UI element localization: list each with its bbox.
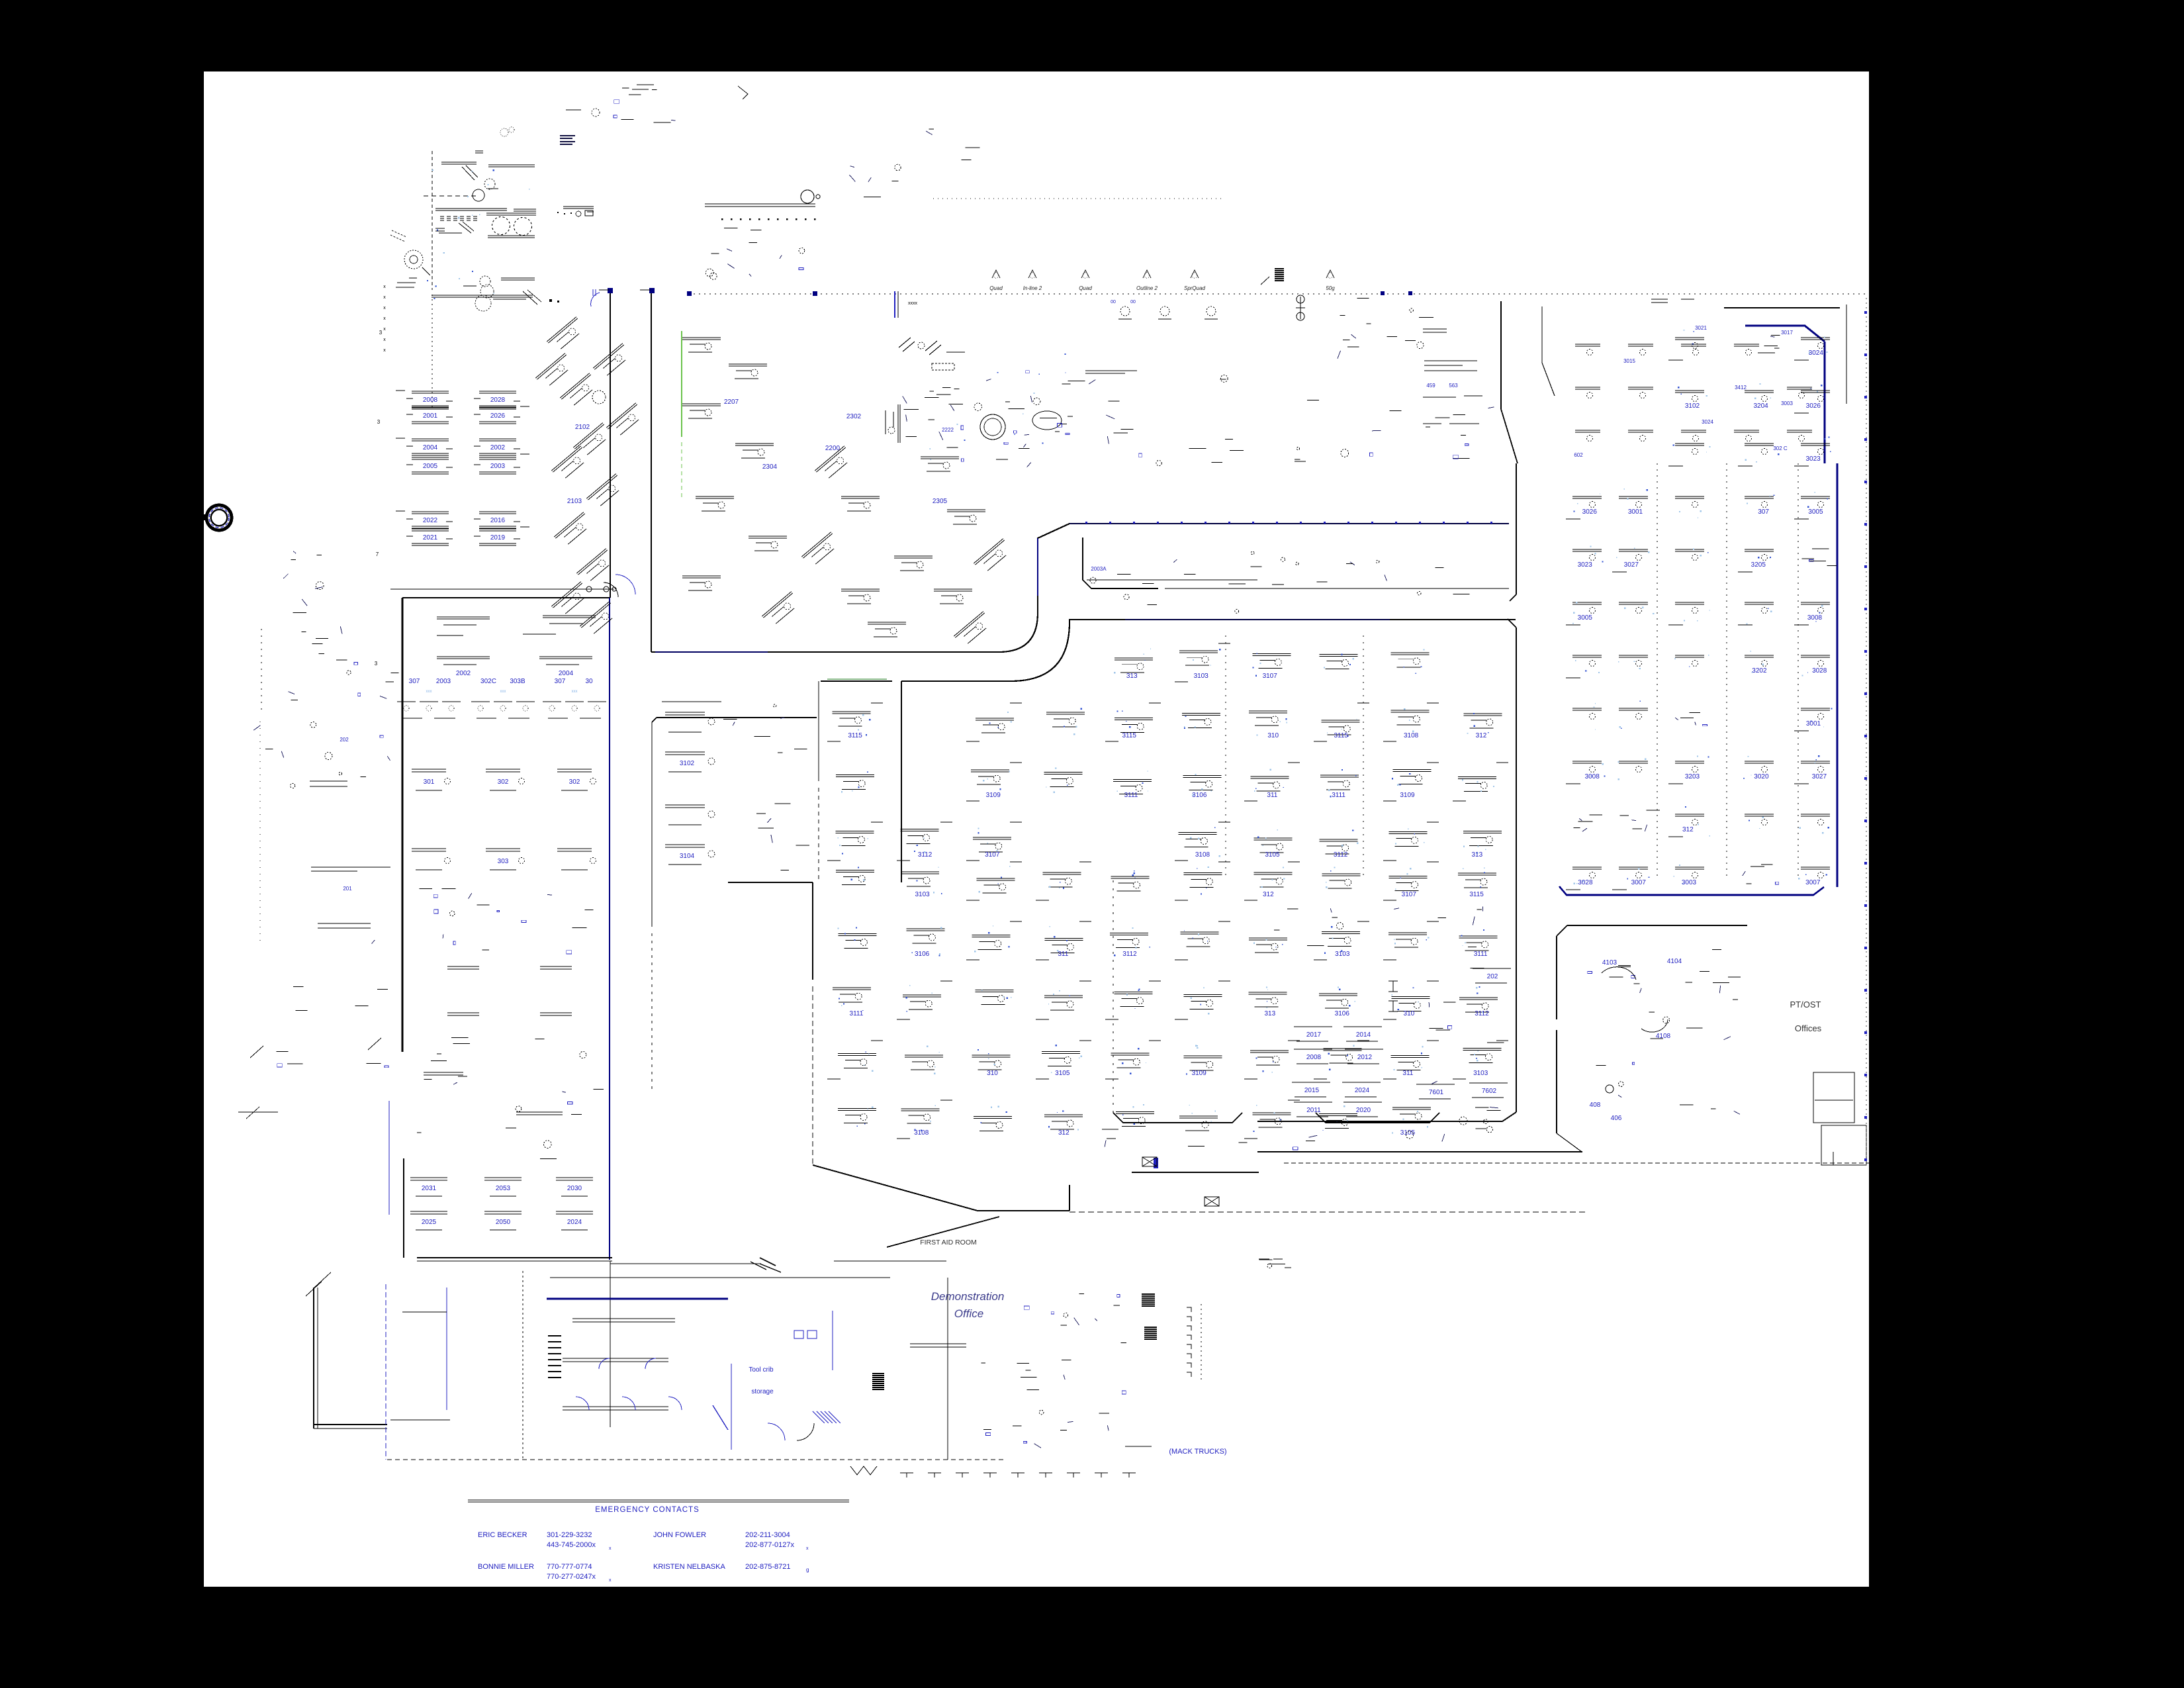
svg-text:7602: 7602 bbox=[1482, 1088, 1497, 1095]
svg-text:3028: 3028 bbox=[1812, 667, 1827, 675]
svg-text:3112: 3112 bbox=[1475, 1010, 1489, 1017]
svg-text:3023: 3023 bbox=[1805, 455, 1821, 463]
svg-text:x: x bbox=[383, 316, 386, 321]
svg-text:3: 3 bbox=[375, 661, 378, 667]
svg-text:301-229-3232: 301-229-3232 bbox=[547, 1531, 592, 1539]
svg-text:2305: 2305 bbox=[933, 498, 948, 505]
svg-text:310: 310 bbox=[987, 1070, 998, 1077]
svg-text:3005: 3005 bbox=[1808, 508, 1823, 516]
svg-text:2020: 2020 bbox=[1356, 1107, 1371, 1114]
svg-text:202-211-3004: 202-211-3004 bbox=[745, 1531, 790, 1539]
svg-text:3105: 3105 bbox=[1055, 1070, 1070, 1077]
svg-text:3001: 3001 bbox=[1806, 720, 1821, 727]
svg-text:2102: 2102 bbox=[575, 424, 590, 431]
svg-text:3108: 3108 bbox=[1195, 851, 1210, 859]
svg-text:3027: 3027 bbox=[1624, 561, 1639, 569]
svg-text:2026: 2026 bbox=[490, 412, 506, 420]
svg-text:x: x bbox=[383, 295, 386, 300]
svg-text:3003: 3003 bbox=[1682, 879, 1697, 886]
svg-text:3023: 3023 bbox=[1578, 561, 1593, 569]
svg-text:x: x bbox=[609, 1546, 612, 1551]
svg-text:313: 313 bbox=[1126, 673, 1138, 680]
svg-text:770-777-0774: 770-777-0774 bbox=[547, 1563, 592, 1571]
svg-text:3: 3 bbox=[379, 330, 383, 336]
svg-text:3112: 3112 bbox=[918, 851, 933, 859]
svg-text:x: x bbox=[609, 1578, 612, 1583]
svg-text:3020: 3020 bbox=[1754, 773, 1769, 780]
svg-text:storage: storage bbox=[751, 1388, 774, 1395]
svg-text:2103: 2103 bbox=[567, 498, 582, 505]
svg-text:3: 3 bbox=[377, 419, 381, 425]
svg-text:SprQuad: SprQuad bbox=[1184, 285, 1206, 291]
svg-text:3007: 3007 bbox=[1631, 879, 1647, 886]
svg-text:3111: 3111 bbox=[850, 1010, 864, 1017]
svg-text:2015: 2015 bbox=[1304, 1087, 1320, 1094]
svg-text:2002: 2002 bbox=[456, 670, 471, 677]
svg-text:Office: Office bbox=[954, 1307, 983, 1320]
svg-text:JOHN FOWLER: JOHN FOWLER bbox=[653, 1531, 706, 1539]
svg-text:3111: 3111 bbox=[1474, 951, 1488, 958]
svg-text:2014: 2014 bbox=[1356, 1031, 1371, 1039]
svg-text:311: 311 bbox=[1402, 1070, 1413, 1077]
svg-text:3109: 3109 bbox=[1192, 1070, 1207, 1077]
svg-text:3103: 3103 bbox=[1194, 673, 1209, 680]
svg-text:2304: 2304 bbox=[762, 463, 778, 471]
svg-text:3106: 3106 bbox=[915, 951, 930, 958]
svg-text:3107: 3107 bbox=[985, 851, 1000, 859]
svg-text:3115: 3115 bbox=[1122, 732, 1136, 739]
svg-text:3115: 3115 bbox=[1469, 891, 1484, 898]
svg-text:3024: 3024 bbox=[1702, 419, 1713, 425]
svg-text:201: 201 bbox=[343, 886, 352, 892]
svg-text:2003A: 2003A bbox=[1091, 566, 1107, 572]
svg-text:310: 310 bbox=[1267, 732, 1279, 739]
svg-text:3107: 3107 bbox=[1402, 891, 1417, 898]
svg-text:3102: 3102 bbox=[680, 760, 695, 767]
svg-text:BONNIE MILLER: BONNIE MILLER bbox=[478, 1563, 534, 1571]
svg-text:xxxx: xxxx bbox=[908, 301, 918, 306]
svg-text:2021: 2021 bbox=[423, 534, 438, 541]
svg-text:xxx: xxx bbox=[500, 690, 506, 694]
svg-text:302: 302 bbox=[569, 778, 580, 786]
svg-text:311: 311 bbox=[1267, 792, 1277, 799]
svg-text:2207: 2207 bbox=[724, 399, 739, 406]
svg-text:2222: 2222 bbox=[942, 427, 954, 433]
svg-text:3102: 3102 bbox=[1685, 402, 1700, 410]
svg-text:3108: 3108 bbox=[1404, 732, 1419, 739]
svg-text:3106: 3106 bbox=[1335, 1010, 1350, 1017]
svg-text:Demonstration: Demonstration bbox=[931, 1290, 1005, 1303]
svg-text:2302: 2302 bbox=[846, 413, 862, 420]
svg-text:2002: 2002 bbox=[490, 444, 506, 451]
svg-text:3103: 3103 bbox=[1335, 951, 1350, 958]
svg-text:2030: 2030 bbox=[567, 1185, 582, 1192]
svg-text:xxx: xxx bbox=[572, 690, 578, 694]
svg-text:3021: 3021 bbox=[1695, 325, 1707, 331]
svg-text:302C: 302C bbox=[480, 678, 496, 685]
svg-text:4104: 4104 bbox=[1667, 958, 1682, 965]
svg-text:3105: 3105 bbox=[1265, 851, 1280, 859]
svg-text:00: 00 bbox=[1111, 300, 1116, 305]
svg-text:4103: 4103 bbox=[1602, 959, 1617, 966]
svg-text:3203: 3203 bbox=[1685, 773, 1700, 780]
svg-text:3109: 3109 bbox=[1400, 792, 1415, 799]
svg-text:3001: 3001 bbox=[1628, 508, 1643, 516]
svg-text:PT/OST: PT/OST bbox=[1790, 1000, 1821, 1009]
svg-text:202-877-0127x: 202-877-0127x bbox=[745, 1541, 795, 1549]
svg-text:2008: 2008 bbox=[423, 397, 438, 404]
svg-text:302: 302 bbox=[498, 778, 509, 786]
svg-text:Outline 2: Outline 2 bbox=[1136, 285, 1158, 291]
svg-text:KRISTEN NELBASKA: KRISTEN NELBASKA bbox=[653, 1563, 725, 1571]
svg-text:3115: 3115 bbox=[1334, 732, 1348, 739]
svg-text:3202: 3202 bbox=[1752, 667, 1767, 675]
svg-text:202: 202 bbox=[1487, 973, 1498, 980]
svg-text:In-line 2: In-line 2 bbox=[1023, 285, 1042, 291]
svg-text:2011: 2011 bbox=[1306, 1107, 1321, 1114]
svg-text:202: 202 bbox=[340, 737, 349, 743]
svg-text:2008: 2008 bbox=[1306, 1054, 1322, 1061]
svg-text:3024: 3024 bbox=[1809, 350, 1824, 357]
svg-text:7601: 7601 bbox=[1429, 1089, 1444, 1096]
svg-text:x: x bbox=[383, 285, 386, 289]
svg-text:2012: 2012 bbox=[1357, 1054, 1373, 1061]
svg-text:(MACK TRUCKS): (MACK TRUCKS) bbox=[1169, 1448, 1226, 1456]
svg-text:3103: 3103 bbox=[915, 891, 930, 898]
svg-text:202-875-8721: 202-875-8721 bbox=[745, 1563, 791, 1571]
svg-text:312: 312 bbox=[1263, 891, 1274, 898]
svg-text:2025: 2025 bbox=[422, 1219, 437, 1226]
svg-text:50g: 50g bbox=[1326, 285, 1335, 291]
svg-text:2001: 2001 bbox=[423, 412, 438, 420]
svg-text:3106: 3106 bbox=[1192, 792, 1207, 799]
svg-text:3028: 3028 bbox=[1578, 879, 1593, 886]
svg-text:7: 7 bbox=[376, 551, 379, 557]
svg-text:459: 459 bbox=[1426, 383, 1435, 389]
svg-text:30: 30 bbox=[585, 678, 593, 685]
svg-text:307: 307 bbox=[409, 678, 420, 685]
svg-text:3205: 3205 bbox=[1751, 561, 1766, 569]
svg-text:770-277-0247x: 770-277-0247x bbox=[547, 1573, 596, 1581]
svg-text:3412: 3412 bbox=[1735, 385, 1747, 391]
svg-text:307: 307 bbox=[555, 678, 566, 685]
svg-text:2004: 2004 bbox=[423, 444, 438, 451]
svg-text:3112: 3112 bbox=[1122, 951, 1137, 958]
svg-text:303B: 303B bbox=[510, 678, 525, 685]
svg-text:2022: 2022 bbox=[423, 517, 438, 524]
svg-text:4108: 4108 bbox=[1656, 1033, 1671, 1040]
svg-text:2200: 2200 bbox=[825, 445, 841, 452]
svg-text:3107: 3107 bbox=[1263, 673, 1278, 680]
svg-text:Offices: Offices bbox=[1795, 1023, 1822, 1033]
svg-text:x: x bbox=[383, 348, 386, 353]
svg-text:312: 312 bbox=[1058, 1129, 1069, 1137]
svg-text:3111: 3111 bbox=[1124, 792, 1138, 799]
svg-text:00: 00 bbox=[1130, 300, 1136, 305]
svg-text:x: x bbox=[383, 306, 386, 310]
svg-text:408: 408 bbox=[1590, 1102, 1601, 1109]
svg-text:2004: 2004 bbox=[559, 670, 574, 677]
svg-text:3003: 3003 bbox=[1781, 400, 1793, 406]
svg-text:xxx: xxx bbox=[426, 690, 432, 694]
svg-text:2017: 2017 bbox=[1306, 1031, 1322, 1039]
svg-text:3007: 3007 bbox=[1805, 879, 1821, 886]
svg-text:2019: 2019 bbox=[490, 534, 506, 541]
svg-text:311: 311 bbox=[1058, 951, 1068, 958]
svg-text:3027: 3027 bbox=[1812, 773, 1827, 780]
svg-text:302 C: 302 C bbox=[1773, 445, 1788, 451]
svg-text:3026: 3026 bbox=[1582, 508, 1598, 516]
svg-text:443-745-2000x: 443-745-2000x bbox=[547, 1541, 596, 1549]
svg-text:313: 313 bbox=[1264, 1010, 1275, 1017]
svg-text:3104: 3104 bbox=[680, 853, 695, 860]
svg-text:3103: 3103 bbox=[1473, 1070, 1488, 1077]
svg-text:3111: 3111 bbox=[1332, 792, 1345, 799]
svg-text:3115: 3115 bbox=[848, 732, 862, 739]
svg-text:2003: 2003 bbox=[490, 463, 506, 470]
svg-text:2028: 2028 bbox=[490, 397, 506, 404]
svg-text:602: 602 bbox=[1574, 452, 1583, 458]
svg-text:2053: 2053 bbox=[496, 1185, 511, 1192]
svg-text:2003: 2003 bbox=[436, 678, 451, 685]
svg-text:x: x bbox=[806, 1546, 809, 1551]
svg-text:3015: 3015 bbox=[1623, 358, 1635, 364]
svg-text:3204: 3204 bbox=[1753, 402, 1768, 410]
svg-text:303: 303 bbox=[498, 858, 509, 865]
svg-text:x: x bbox=[383, 327, 386, 332]
svg-text:310: 310 bbox=[1404, 1010, 1415, 1017]
svg-text:3026: 3026 bbox=[1806, 402, 1821, 410]
svg-text:Tool crib: Tool crib bbox=[749, 1366, 774, 1374]
svg-text:2031: 2031 bbox=[422, 1185, 437, 1192]
svg-text:EMERGENCY CONTACTS: EMERGENCY CONTACTS bbox=[595, 1506, 700, 1514]
svg-text:2016: 2016 bbox=[490, 517, 506, 524]
svg-text:313: 313 bbox=[1471, 851, 1482, 859]
svg-text:Quad: Quad bbox=[1079, 285, 1092, 291]
svg-text:2005: 2005 bbox=[423, 463, 438, 470]
svg-text:2024: 2024 bbox=[1355, 1087, 1370, 1094]
svg-text:301: 301 bbox=[424, 778, 435, 786]
svg-text:3008: 3008 bbox=[1807, 614, 1823, 622]
svg-text:563: 563 bbox=[1449, 383, 1458, 389]
svg-text:406: 406 bbox=[1611, 1115, 1622, 1122]
svg-text:x: x bbox=[383, 338, 386, 342]
svg-text:3017: 3017 bbox=[1781, 330, 1793, 336]
svg-text:3005: 3005 bbox=[1578, 614, 1593, 622]
svg-text:ERIC BECKER: ERIC BECKER bbox=[478, 1531, 527, 1539]
svg-text:3108: 3108 bbox=[914, 1129, 929, 1137]
svg-text:2024: 2024 bbox=[567, 1219, 582, 1226]
svg-text:2050: 2050 bbox=[496, 1219, 511, 1226]
svg-text:FIRST AID ROOM: FIRST AID ROOM bbox=[920, 1239, 977, 1246]
svg-text:g: g bbox=[806, 1567, 809, 1573]
svg-text:3008: 3008 bbox=[1585, 773, 1600, 780]
svg-text:312: 312 bbox=[1476, 732, 1487, 739]
svg-text:Quad: Quad bbox=[989, 285, 1003, 291]
svg-text:3112: 3112 bbox=[1334, 851, 1348, 859]
svg-text:307: 307 bbox=[1758, 508, 1769, 516]
svg-text:312: 312 bbox=[1682, 826, 1694, 833]
svg-text:3109: 3109 bbox=[986, 792, 1001, 799]
